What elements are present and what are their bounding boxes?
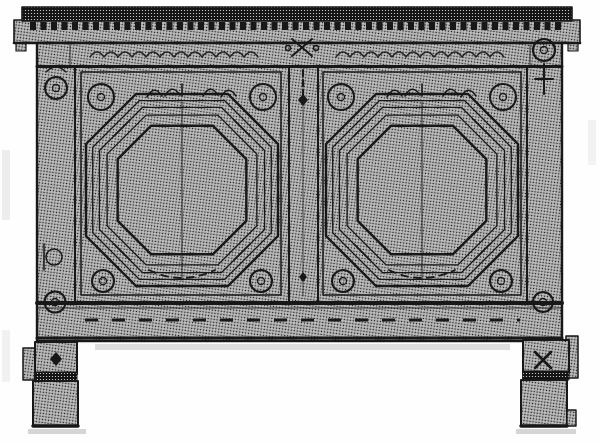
foot-side-tab [567,410,576,426]
chest-drawing [14,7,580,434]
leg-foot-block [33,381,78,426]
rear-left-leg [23,348,35,380]
leg-foot-block [521,380,567,426]
leg-shadow [28,429,86,434]
margin-smudge [2,330,10,382]
chest-body [37,43,562,341]
underside-shadow [95,344,510,350]
engraving-page [0,0,600,443]
leg-shadow [516,429,576,434]
front-left-leg [23,342,86,434]
front-right-leg [516,336,578,434]
margin-smudge [588,120,596,165]
leg-collar-band [35,372,77,381]
margin-smudge [2,150,10,220]
top-cap [22,7,572,21]
leg-collar-band [523,371,569,380]
chest-engraving [0,0,600,443]
